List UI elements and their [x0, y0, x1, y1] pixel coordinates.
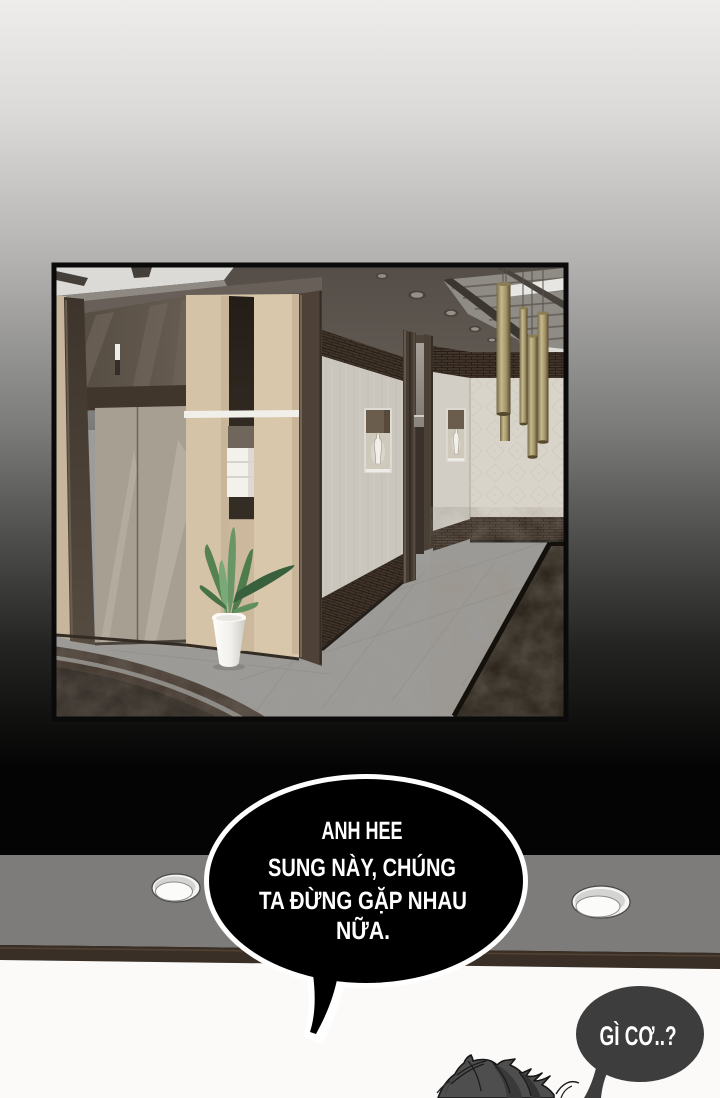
- svg-text:NỮA.: NỮA.: [336, 916, 390, 945]
- svg-text:TA ĐỪNG GẶP NHAU: TA ĐỪNG GẶP NHAU: [259, 886, 467, 915]
- svg-text:SUNG NÀY, CHÚNG: SUNG NÀY, CHÚNG: [268, 853, 456, 882]
- svg-text:ANH HEE: ANH HEE: [322, 817, 403, 845]
- svg-text:GÌ CƠ..?: GÌ CƠ..?: [600, 1021, 677, 1051]
